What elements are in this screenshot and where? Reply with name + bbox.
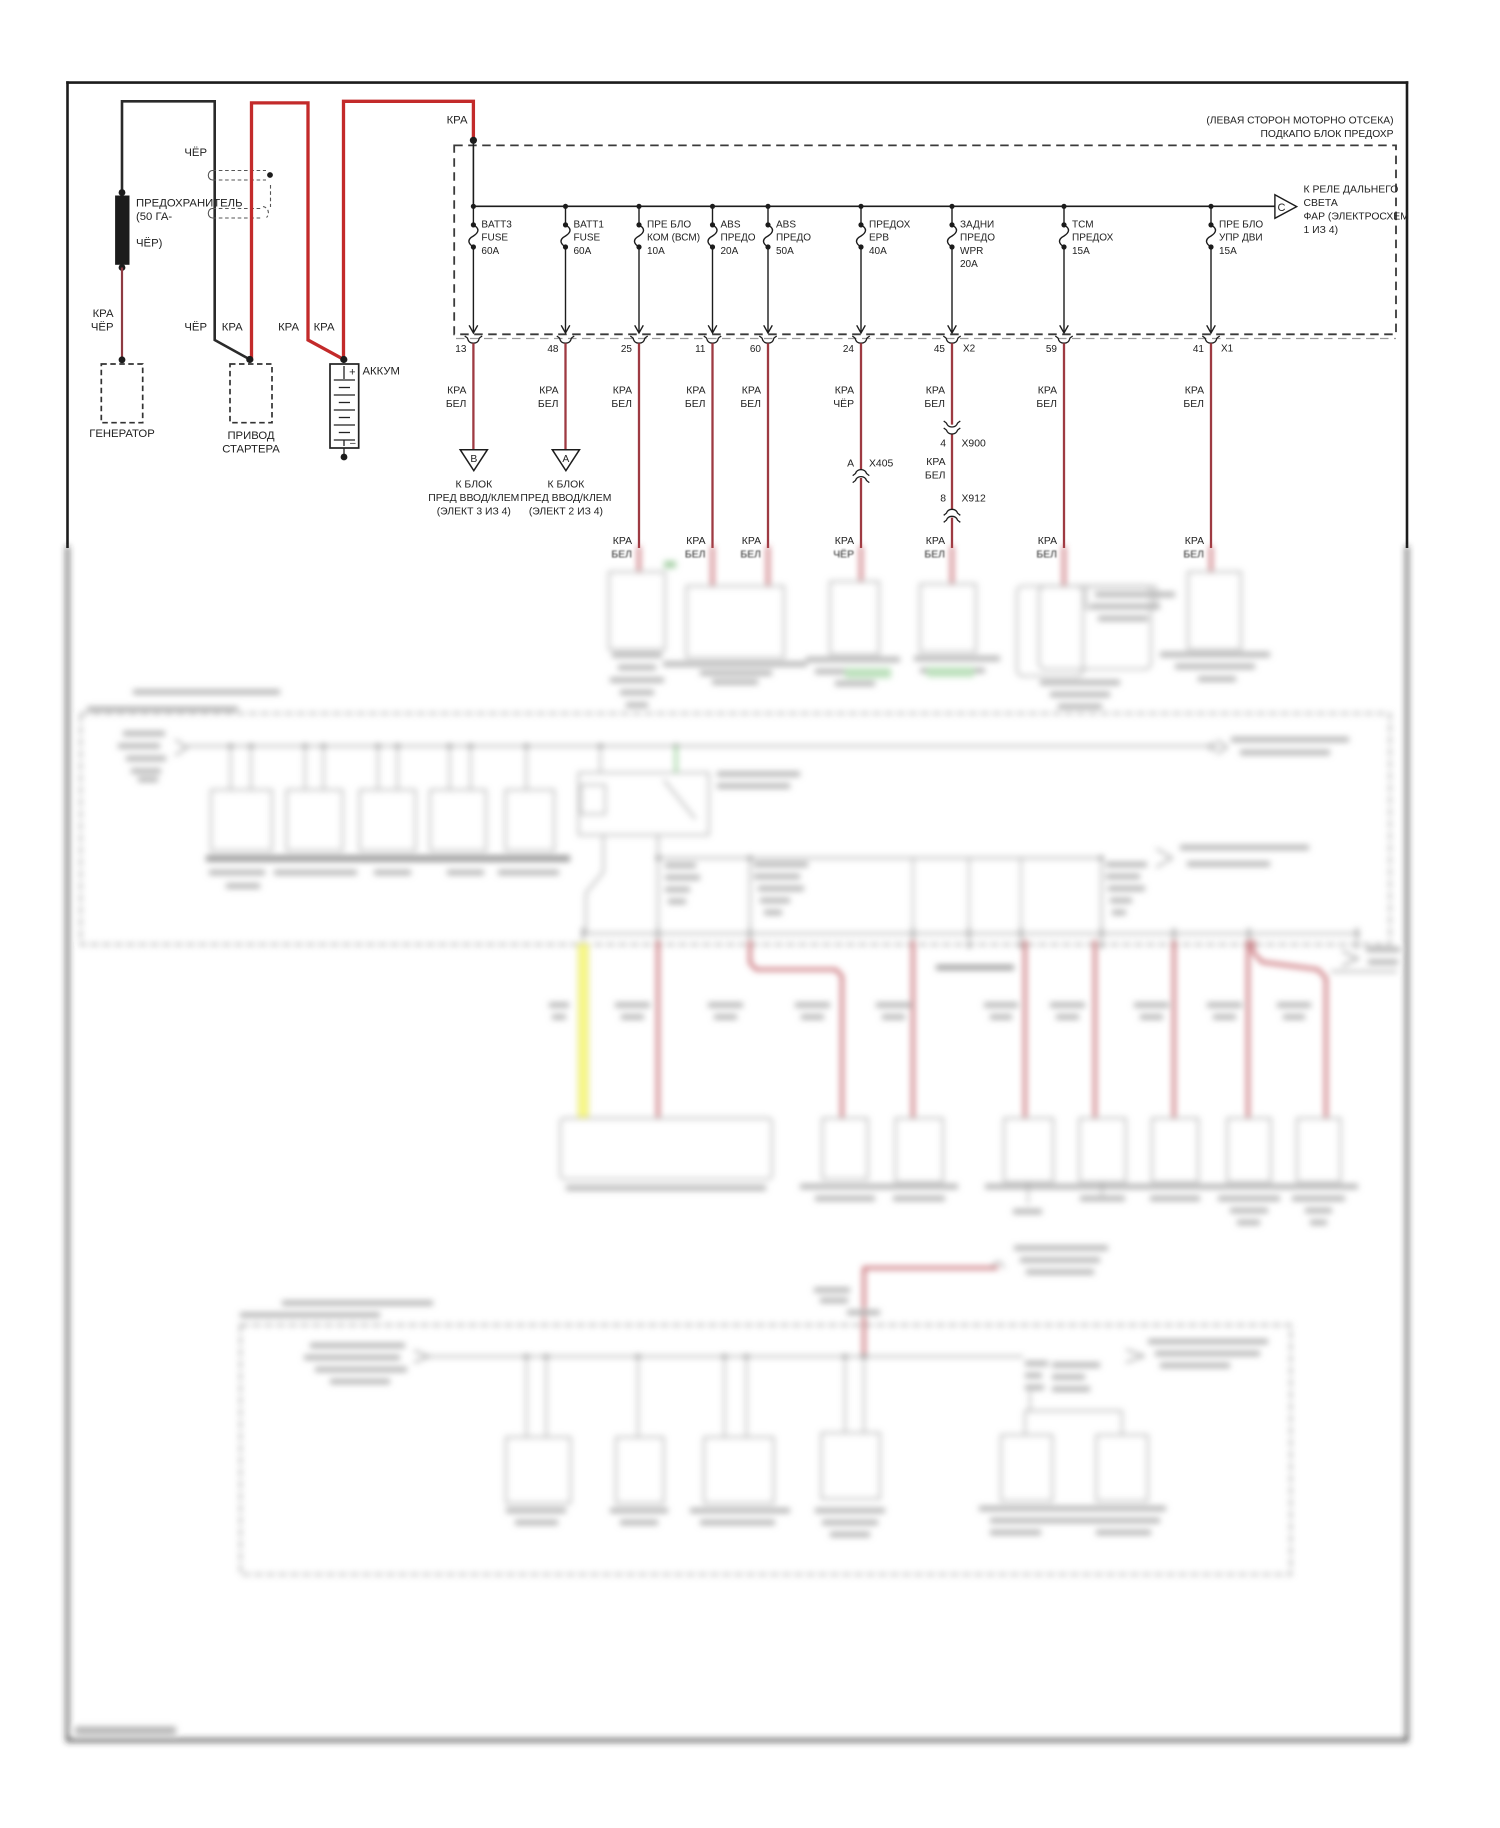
- svg-text:БЕЛ: БЕЛ: [611, 549, 632, 560]
- svg-text:КРА: КРА: [742, 386, 761, 397]
- svg-text:X1: X1: [1221, 344, 1234, 355]
- svg-text:КРА: КРА: [447, 115, 468, 127]
- svg-text:КРА: КРА: [613, 536, 632, 547]
- svg-text:КОМ (ВСМ): КОМ (ВСМ): [647, 233, 700, 244]
- svg-text:13: 13: [455, 344, 467, 355]
- svg-text:КРА: КРА: [222, 321, 243, 333]
- svg-text:59: 59: [1046, 344, 1058, 355]
- svg-text:60: 60: [750, 344, 762, 355]
- svg-text:45: 45: [934, 344, 946, 355]
- svg-text:ПРЕДОХРАНИТЕЛЬ: ПРЕДОХРАНИТЕЛЬ: [136, 198, 243, 210]
- svg-text:КРА: КРА: [742, 536, 761, 547]
- svg-text:КРА: КРА: [1038, 386, 1057, 397]
- svg-text:КРА: КРА: [686, 386, 705, 397]
- svg-text:ПРЕДО: ПРЕДО: [776, 233, 811, 244]
- svg-text:11: 11: [695, 344, 706, 355]
- svg-text:ЧЁР: ЧЁР: [91, 321, 114, 333]
- svg-text:БЕЛ: БЕЛ: [740, 549, 761, 560]
- svg-text:БЕЛ: БЕЛ: [924, 399, 945, 410]
- svg-text:ПРЕДОХ: ПРЕДОХ: [869, 219, 911, 230]
- svg-text:ФАР (ЭЛЕКТРОСХЕМ: ФАР (ЭЛЕКТРОСХЕМ: [1304, 212, 1409, 223]
- svg-text:ТСМ: ТСМ: [1072, 219, 1094, 230]
- svg-text:БЕЛ: БЕЛ: [740, 399, 761, 410]
- svg-text:BATT3: BATT3: [481, 219, 512, 230]
- svg-text:БЕЛ: БЕЛ: [685, 549, 706, 560]
- svg-text:ABS: ABS: [721, 219, 741, 230]
- svg-text:60A: 60A: [481, 246, 499, 257]
- svg-text:20A: 20A: [721, 246, 739, 257]
- svg-text:B: B: [470, 454, 477, 465]
- svg-text:ПРЕД ВВОД/КЛЕМ: ПРЕД ВВОД/КЛЕМ: [520, 493, 611, 504]
- svg-text:ЧЁР: ЧЁР: [184, 147, 207, 159]
- svg-text:КРА: КРА: [835, 386, 854, 397]
- svg-text:К БЛОК: К БЛОК: [455, 480, 492, 491]
- svg-text:(ЛЕВАЯ СТОРОН МОТОРНО ОТСЕКА): (ЛЕВАЯ СТОРОН МОТОРНО ОТСЕКА): [1206, 115, 1393, 126]
- svg-text:40A: 40A: [869, 246, 887, 257]
- svg-text:X405: X405: [869, 458, 893, 469]
- svg-text:БЕЛ: БЕЛ: [685, 399, 706, 410]
- svg-text:C: C: [1278, 202, 1286, 214]
- svg-text:К БЛОК: К БЛОК: [548, 480, 585, 491]
- svg-text:БЕЛ: БЕЛ: [1183, 549, 1204, 560]
- svg-text:ЧЁР: ЧЁР: [833, 548, 854, 560]
- svg-text:X2: X2: [963, 344, 976, 355]
- svg-text:WPR: WPR: [960, 246, 983, 257]
- svg-text:ПРИВОД: ПРИВОД: [227, 430, 274, 442]
- svg-text:КРА: КРА: [314, 321, 335, 333]
- svg-text:ЗАДНИ: ЗАДНИ: [960, 219, 994, 230]
- svg-text:КРА: КРА: [835, 536, 854, 547]
- svg-text:ПРЕДО: ПРЕДО: [721, 233, 756, 244]
- svg-text:КРА: КРА: [278, 321, 299, 333]
- svg-text:X900: X900: [962, 439, 986, 450]
- svg-text:БЕЛ: БЕЛ: [925, 471, 946, 482]
- svg-text:FUSE: FUSE: [574, 233, 601, 244]
- svg-text:КРА: КРА: [93, 308, 114, 320]
- svg-text:ПРЕ БЛО: ПРЕ БЛО: [1219, 219, 1263, 230]
- svg-text:X912: X912: [962, 493, 986, 504]
- svg-text:СТАРТЕРА: СТАРТЕРА: [222, 443, 280, 455]
- svg-text:15A: 15A: [1219, 246, 1237, 257]
- svg-text:BATT1: BATT1: [574, 219, 605, 230]
- svg-text:БЕЛ: БЕЛ: [924, 549, 945, 560]
- svg-text:КРА: КРА: [539, 386, 558, 397]
- svg-text:(ЭЛЕКТ 3 ИЗ 4): (ЭЛЕКТ 3 ИЗ 4): [437, 507, 511, 518]
- svg-text:БЕЛ: БЕЛ: [538, 399, 559, 410]
- svg-text:КРА: КРА: [1185, 536, 1204, 547]
- svg-text:20A: 20A: [960, 259, 978, 270]
- svg-text:АККУМ: АККУМ: [363, 365, 400, 377]
- svg-text:(ЭЛЕКТ 2 ИЗ 4): (ЭЛЕКТ 2 ИЗ 4): [529, 507, 603, 518]
- svg-text:КРА: КРА: [926, 457, 945, 468]
- svg-text:ПРЕД ВВОД/КЛЕМ: ПРЕД ВВОД/КЛЕМ: [428, 493, 519, 504]
- svg-text:БЕЛ: БЕЛ: [1036, 399, 1057, 410]
- svg-text:8: 8: [940, 493, 946, 504]
- svg-text:КРА: КРА: [1038, 536, 1057, 547]
- svg-text:ЧЁР: ЧЁР: [184, 321, 207, 333]
- svg-text:К РЕЛЕ ДАЛЬНЕГО: К РЕЛЕ ДАЛЬНЕГО: [1304, 185, 1399, 196]
- svg-text:A: A: [562, 454, 569, 465]
- svg-text:КРА: КРА: [926, 536, 945, 547]
- svg-text:A: A: [847, 458, 854, 469]
- svg-text:24: 24: [843, 344, 855, 355]
- svg-text:КРА: КРА: [1185, 386, 1204, 397]
- svg-text:41: 41: [1193, 344, 1205, 355]
- svg-text:БЕЛ: БЕЛ: [1036, 549, 1057, 560]
- svg-text:ПОДКАПО БЛОК ПРЕДОХР: ПОДКАПО БЛОК ПРЕДОХР: [1261, 129, 1394, 140]
- svg-text:БЕЛ: БЕЛ: [446, 399, 467, 410]
- svg-text:БЕЛ: БЕЛ: [1183, 399, 1204, 410]
- svg-text:10A: 10A: [647, 246, 665, 257]
- svg-text:СВЕТА: СВЕТА: [1304, 198, 1338, 209]
- svg-text:4: 4: [940, 439, 946, 450]
- svg-text:60A: 60A: [574, 246, 592, 257]
- svg-text:50A: 50A: [776, 246, 794, 257]
- svg-text:–: –: [350, 438, 356, 449]
- svg-text:1 ИЗ 4): 1 ИЗ 4): [1304, 225, 1339, 236]
- svg-text:ABS: ABS: [776, 219, 796, 230]
- svg-text:КРА: КРА: [447, 386, 466, 397]
- svg-text:(50 ГА-: (50 ГА-: [136, 211, 172, 223]
- svg-text:ПРЕ БЛО: ПРЕ БЛО: [647, 219, 691, 230]
- svg-text:ЧЁР): ЧЁР): [136, 237, 163, 249]
- svg-text:ЧЁР: ЧЁР: [833, 398, 854, 410]
- svg-text:БЕЛ: БЕЛ: [611, 399, 632, 410]
- svg-text:ПРЕДОХ: ПРЕДОХ: [1072, 233, 1114, 244]
- svg-text:КРА: КРА: [686, 536, 705, 547]
- svg-text:УПР ДВИ: УПР ДВИ: [1219, 233, 1263, 244]
- svg-text:48: 48: [547, 344, 559, 355]
- svg-text:ГЕНЕРАТОР: ГЕНЕРАТОР: [89, 428, 155, 440]
- svg-text:25: 25: [621, 344, 633, 355]
- svg-text:КРА: КРА: [926, 386, 945, 397]
- svg-text:КРА: КРА: [613, 386, 632, 397]
- svg-text:FUSE: FUSE: [481, 233, 508, 244]
- svg-text:ЕРВ: ЕРВ: [869, 233, 889, 244]
- svg-text:+: +: [349, 366, 355, 378]
- svg-text:15A: 15A: [1072, 246, 1090, 257]
- svg-text:ПРЕДО: ПРЕДО: [960, 233, 995, 244]
